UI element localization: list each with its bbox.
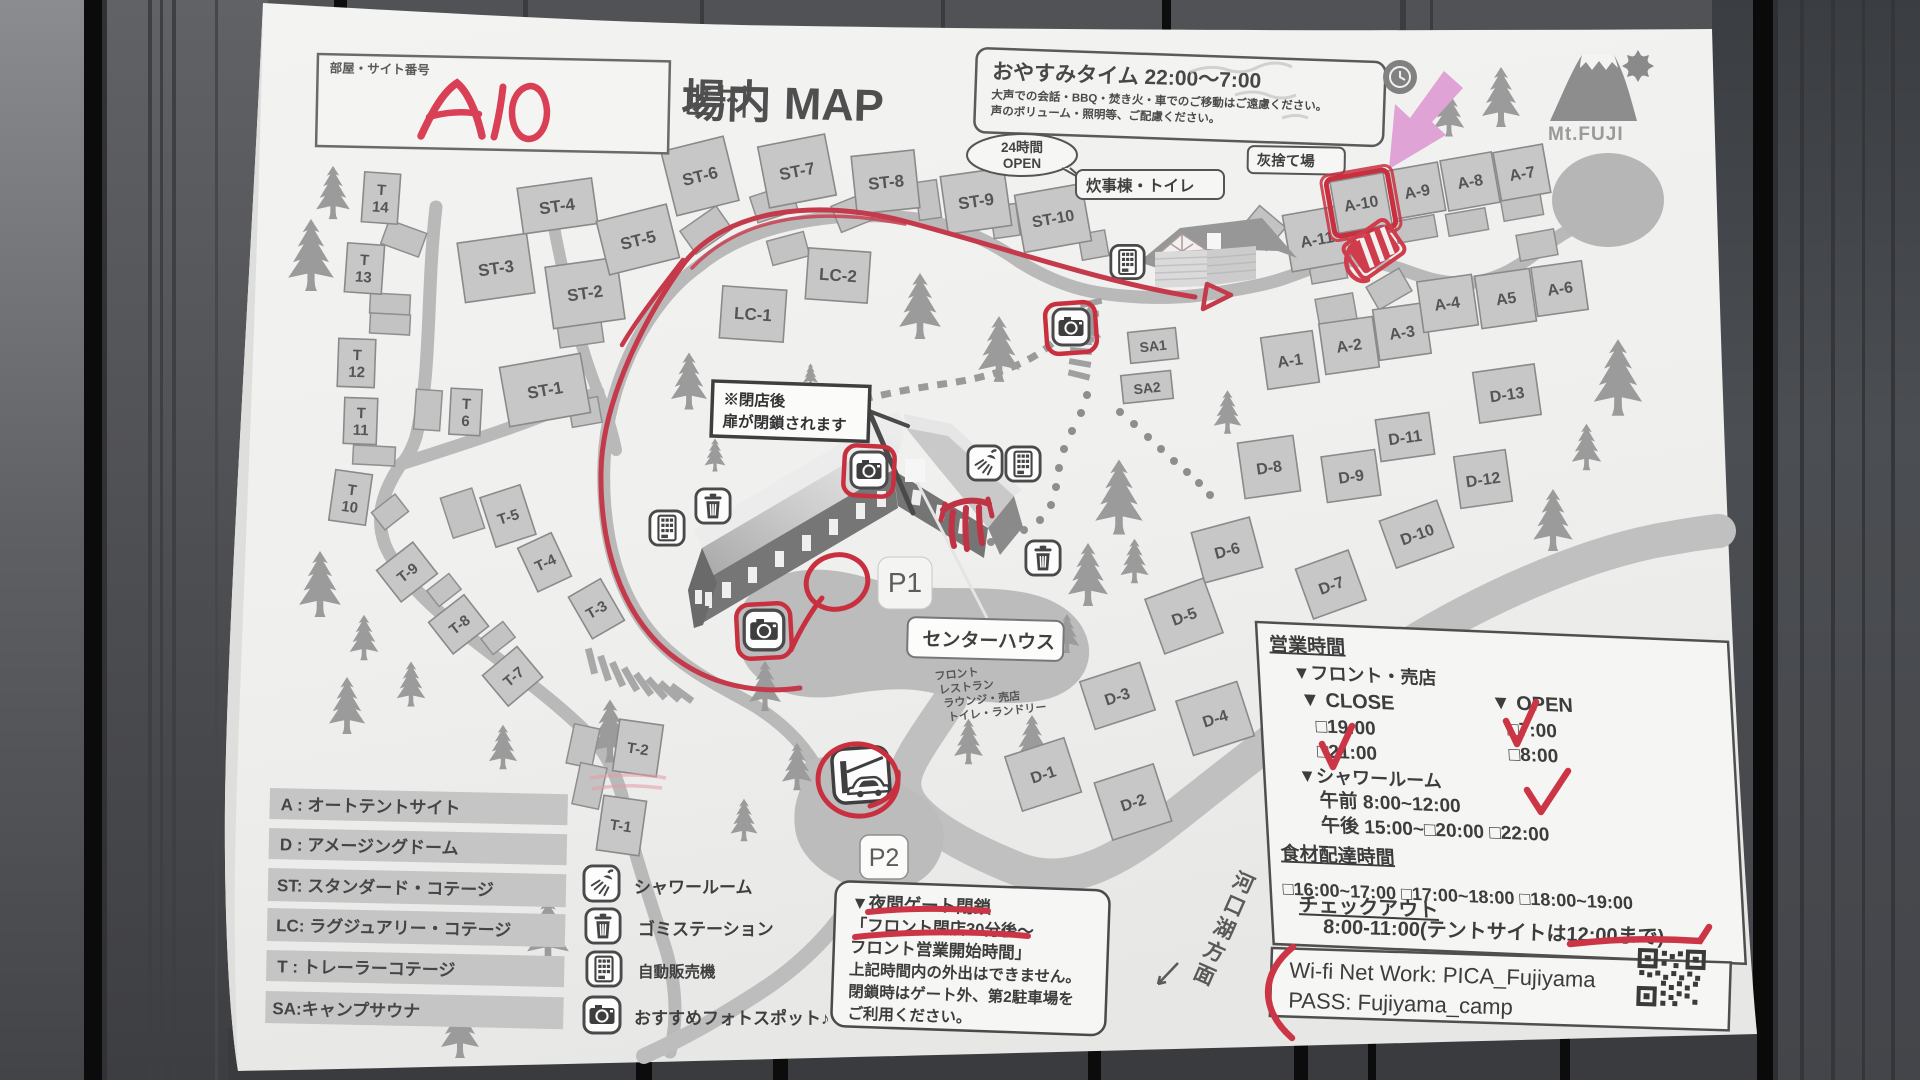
svg-text:自動販売機: 自動販売機 xyxy=(638,962,716,981)
svg-text:P1: P1 xyxy=(888,567,922,598)
svg-text:センターハウス: センターハウス xyxy=(922,628,1055,653)
svg-text:10: 10 xyxy=(340,498,359,517)
svg-text:P2: P2 xyxy=(869,844,900,872)
svg-text:A5: A5 xyxy=(1495,290,1518,310)
svg-text:シャワールーム: シャワールーム xyxy=(634,878,753,897)
svg-text:おすすめフォトスポット♪: おすすめフォトスポット♪ xyxy=(634,1008,830,1028)
svg-text:OPEN: OPEN xyxy=(1003,156,1041,171)
svg-text:A-2: A-2 xyxy=(1335,336,1363,356)
svg-text:SA:キャンプサウナ: SA:キャンプサウナ xyxy=(272,998,420,1021)
svg-text:D-9: D-9 xyxy=(1337,467,1365,487)
svg-text:▼ CLOSE: ▼ CLOSE xyxy=(1300,689,1395,715)
svg-text:A : オートテントサイト: A : オートテントサイト xyxy=(280,795,460,818)
svg-text:場内 MAP: 場内 MAP xyxy=(681,75,885,131)
svg-text:13: 13 xyxy=(354,268,372,286)
svg-text:炊事棟・トイレ: 炊事棟・トイレ xyxy=(1086,176,1195,195)
svg-text:12: 12 xyxy=(348,364,365,382)
svg-text:□8:00: □8:00 xyxy=(1508,744,1559,767)
svg-text:灰捨て場: 灰捨て場 xyxy=(1257,151,1316,170)
svg-text:部屋・サイト番号: 部屋・サイト番号 xyxy=(330,60,430,77)
svg-text:11: 11 xyxy=(352,422,368,440)
svg-text:T: T xyxy=(461,396,471,413)
svg-text:T: T xyxy=(352,347,362,364)
svg-text:LC-2: LC-2 xyxy=(818,265,857,287)
svg-text:14: 14 xyxy=(371,198,389,216)
svg-text:T-1: T-1 xyxy=(609,817,633,837)
svg-text:A-1: A-1 xyxy=(1276,351,1304,371)
svg-text:A-3: A-3 xyxy=(1388,323,1416,343)
svg-text:D : アメージングドーム: D : アメージングドーム xyxy=(280,834,459,858)
svg-text:SA1: SA1 xyxy=(1139,337,1168,356)
svg-text:T : トレーラーコテージ: T : トレーラーコテージ xyxy=(277,957,456,980)
svg-text:ST-8: ST-8 xyxy=(867,171,905,194)
svg-text:A-4: A-4 xyxy=(1433,294,1461,314)
svg-text:T-2: T-2 xyxy=(626,740,650,760)
svg-text:ゴミステーション: ゴミステーション xyxy=(638,919,774,939)
svg-text:T: T xyxy=(376,182,386,200)
svg-text:LC-1: LC-1 xyxy=(733,304,772,326)
svg-text:T: T xyxy=(359,252,369,270)
svg-text:T: T xyxy=(356,405,366,422)
svg-text:Mt.FUJI: Mt.FUJI xyxy=(1548,124,1624,145)
svg-text:6: 6 xyxy=(461,413,470,430)
svg-text:SA2: SA2 xyxy=(1133,379,1162,398)
svg-text:営業時間: 営業時間 xyxy=(1269,633,1346,659)
svg-text:24時間: 24時間 xyxy=(1001,139,1043,155)
svg-text:A-6: A-6 xyxy=(1546,279,1574,299)
svg-text:※閉店後: ※閉店後 xyxy=(723,389,786,410)
svg-text:D-8: D-8 xyxy=(1255,458,1283,478)
